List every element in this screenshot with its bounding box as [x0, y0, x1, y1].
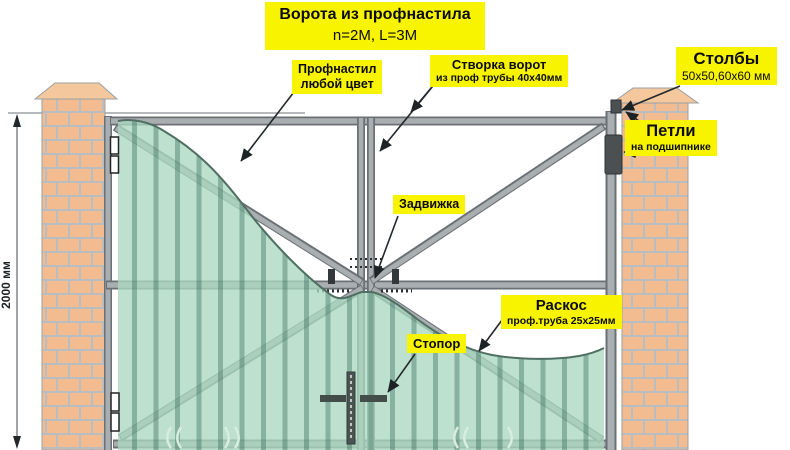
title-line2: n=2M, L=3M	[269, 27, 481, 45]
diagram-canvas: 2000 мм	[0, 0, 790, 450]
label-stolby-line1: Столбы	[682, 49, 771, 69]
dimension-text: 2000 мм	[0, 261, 13, 309]
label-raskos: Раскос проф.труба 25x25мм	[501, 295, 622, 329]
label-profnastil-line2: любой цвет	[298, 77, 376, 92]
label-stolby: Столбы 50x50,60x60 мм	[676, 47, 777, 85]
label-zadvizhka: Задвижка	[393, 195, 465, 214]
right-hinge-top-icon	[611, 100, 621, 113]
label-petli: Петли на подшипнике	[625, 120, 717, 156]
label-stolby-line2: 50x50,60x60 мм	[682, 69, 771, 83]
left-hinge-top2-icon	[111, 156, 119, 173]
left-hinge-top-icon	[111, 137, 119, 154]
right-hinge-bearing-icon	[605, 135, 622, 174]
latch-pin-left	[328, 269, 335, 284]
label-petli-line2: на подшипнике	[631, 141, 711, 153]
label-raskos-line1: Раскос	[507, 297, 616, 315]
label-petli-line1: Петли	[631, 122, 711, 141]
label-stvorka-line2: из проф трубы 40x40мм	[436, 72, 562, 84]
label-stvorka: Створка ворот из проф трубы 40x40мм	[430, 55, 568, 87]
left-hinge-bottom-icon	[111, 393, 119, 411]
label-stvorka-line1: Створка ворот	[436, 57, 562, 72]
left-hinge-bottom2-icon	[111, 413, 119, 431]
dimension-arrow-up-icon	[13, 114, 21, 127]
label-raskos-line2: проф.труба 25x25мм	[507, 315, 616, 327]
title-line1: Ворота из профнастила	[269, 6, 481, 25]
label-profnastil: Профнастил любой цвет	[292, 60, 382, 94]
label-profnastil-line1: Профнастил	[298, 62, 376, 77]
left-pillar-brick	[42, 99, 105, 450]
left-pillar-cap	[35, 83, 117, 99]
label-stopor: Стопор	[407, 334, 466, 353]
height-dimension: 2000 мм	[0, 114, 21, 449]
diagram-title: Ворота из профнастила n=2M, L=3M	[265, 2, 485, 50]
latch-pin-right	[392, 269, 399, 284]
arrow-stvorka-post	[380, 81, 437, 151]
dimension-arrow-down-icon	[13, 436, 21, 449]
gate-diagram: 2000 мм	[0, 0, 790, 450]
